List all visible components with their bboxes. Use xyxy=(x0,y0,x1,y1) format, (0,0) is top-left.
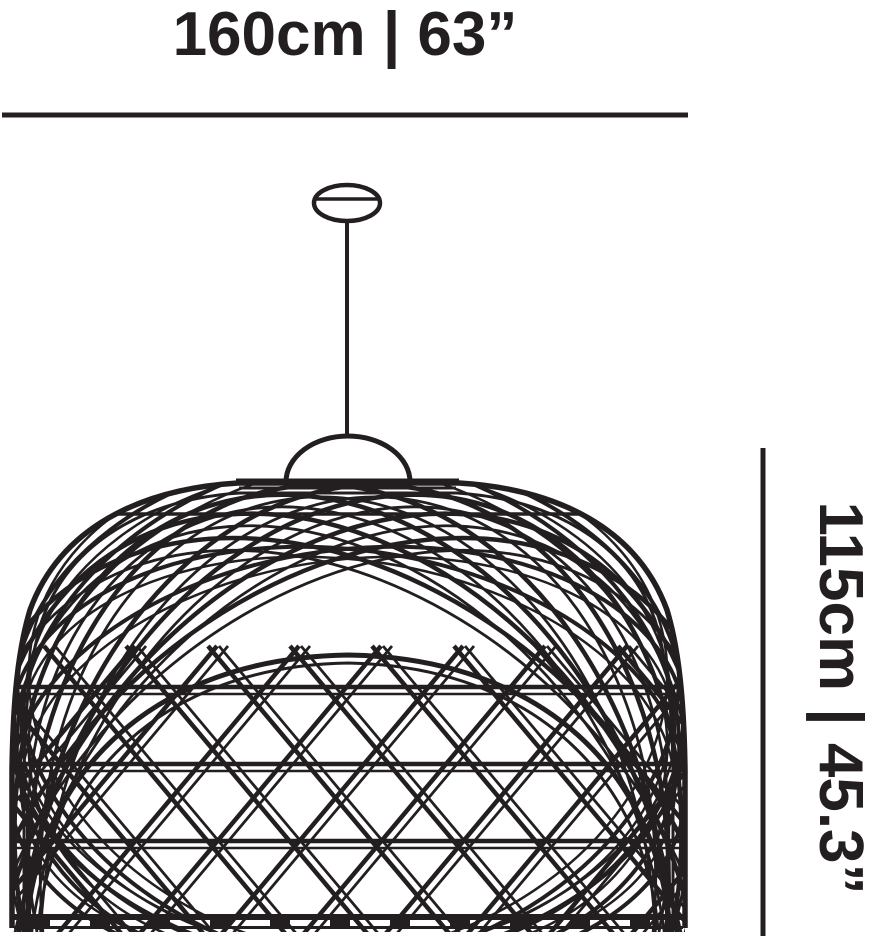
ceiling-canopy xyxy=(314,185,380,221)
width-dimension-label: 160cm | 63” xyxy=(0,4,690,66)
lamp-line-drawing xyxy=(0,0,880,938)
height-dimension-label: 115cm | 45.3” xyxy=(809,448,871,938)
socket-cover xyxy=(286,436,410,482)
outer-shade-weave xyxy=(0,377,880,938)
dimension-diagram: 160cm | 63” 115cm | 45.3” xyxy=(0,0,880,938)
shade-lattice xyxy=(0,646,880,938)
